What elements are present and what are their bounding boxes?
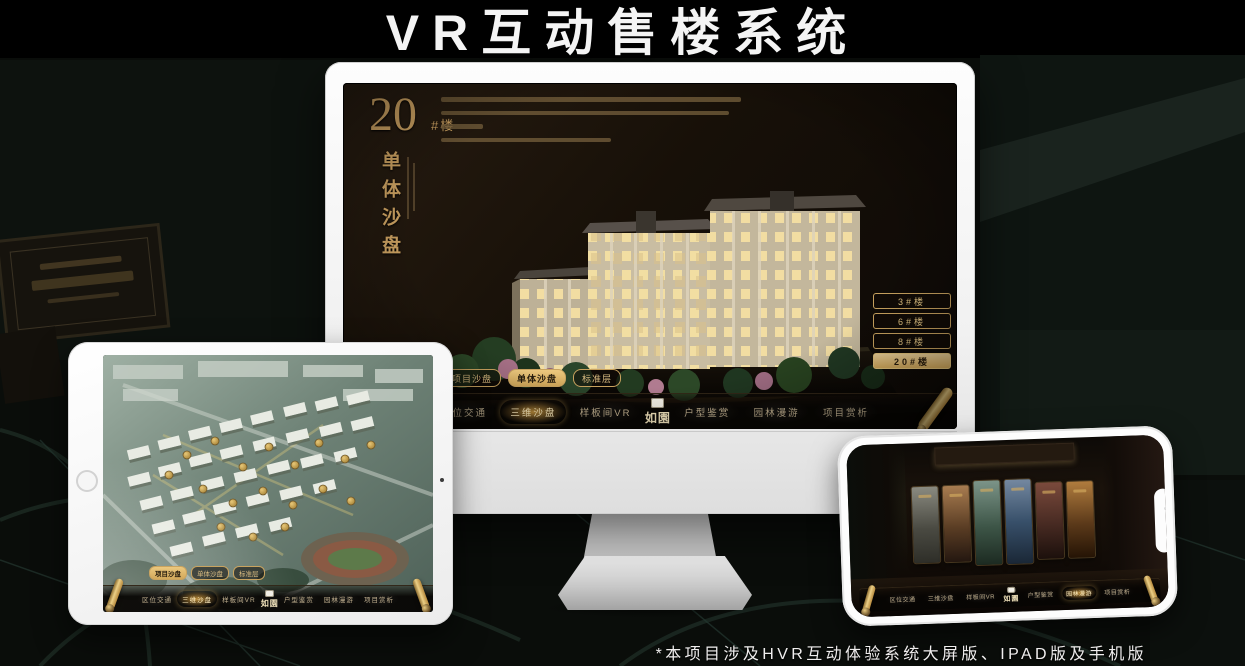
brand-logo: 如園 [1003,587,1020,605]
nav-item[interactable]: 园林漫游 [1062,586,1096,600]
sub-tab[interactable]: 单体沙盘 [191,566,229,580]
seal-icon [265,590,274,597]
nav-item[interactable]: 项目赏析 [1100,585,1134,599]
floor-button[interactable]: 8#楼 [873,333,951,349]
nav-item[interactable]: 三维沙盘 [500,400,566,424]
building-number-headline: 20 [369,91,417,139]
scene-panel[interactable] [943,485,972,562]
brand-logo: 如園 [645,398,671,426]
tablet-camera-dot [440,478,444,482]
brand-logo: 如園 [261,590,279,609]
scene-panel[interactable] [912,486,941,563]
tablet-navbar: 区位交通三维沙盘样板间VR 如園 户型鉴赏园林漫游项目赏析 [103,585,433,612]
page-title: VR互动售楼系统 [0,0,1245,58]
nav-item[interactable]: 园林漫游 [319,591,359,607]
nav-item[interactable]: 样板间VR [570,400,642,424]
award-plaque [0,225,169,343]
tablet-screen: 项目沙盘单体沙盘标准层 区位交通三维沙盘样板间VR 如園 户型鉴赏园林漫游项目赏… [103,355,433,612]
monitor-stand-neck [583,512,717,562]
nav-item[interactable]: 园林漫游 [744,400,810,424]
stage: VR互动售楼系统 20 #楼 单体沙盘 [0,0,1245,666]
nav-item[interactable]: 户型鉴赏 [674,400,740,424]
nav-item[interactable]: 样板间VR [962,589,999,603]
nav-item[interactable]: 户型鉴赏 [279,591,319,607]
phone-notch [1154,488,1169,553]
scene-panel[interactable] [1036,482,1065,559]
seal-icon [1007,587,1015,593]
scroll-toggle-icon[interactable] [1143,575,1159,604]
footnote-caption: *本项目涉及HVR互动体验系统大屏版、IPAD版及手机版 [656,640,1147,664]
monitor-stand-base [558,556,752,610]
sub-tab[interactable]: 标准层 [573,369,621,387]
phone-camera-icon [1164,506,1168,510]
tablet-device: 项目沙盘单体沙盘标准层 区位交通三维沙盘样板间VR 如園 户型鉴赏园林漫游项目赏… [68,342,453,625]
sub-tab[interactable]: 标准层 [233,566,265,580]
nav-item[interactable]: 户型鉴赏 [1023,587,1057,601]
nav-item[interactable]: 项目赏析 [359,591,399,607]
nav-item[interactable]: 区位交通 [137,591,177,607]
tablet-home-button [76,470,98,492]
scroll-toggle-icon[interactable] [916,386,954,429]
phone-device: 区位交通三维沙盘样板间VR 如園 户型鉴赏园林漫游项目赏析 [837,425,1178,627]
scene-panel[interactable] [973,480,1002,565]
sub-tab[interactable]: 项目沙盘 [149,566,187,580]
nav-item[interactable]: 三维沙盘 [177,591,217,607]
floor-button-group: 3#楼6#楼8#楼20#楼 [873,293,951,369]
floor-button[interactable]: 6#楼 [873,313,951,329]
floor-button[interactable]: 20#楼 [873,353,951,369]
scene-panel[interactable] [1004,479,1033,564]
seal-icon [651,398,664,408]
scene-panel[interactable] [1066,481,1095,558]
floor-button[interactable]: 3#楼 [873,293,951,309]
interior-ceiling-light [934,443,1075,466]
phone-screen: 区位交通三维沙盘样板间VR 如園 户型鉴赏园林漫游项目赏析 [846,435,1169,618]
nav-item[interactable]: 三维沙盘 [924,591,958,605]
nav-item[interactable]: 区位交通 [885,592,919,606]
tablet-subtabs: 项目沙盘单体沙盘标准层 [149,566,265,580]
nav-item[interactable]: 样板间VR [217,591,261,607]
nav-item[interactable]: 项目赏析 [813,400,879,424]
scene-gallery [912,481,1096,567]
scroll-toggle-icon[interactable] [862,584,876,613]
desktop-subtabs: 项目沙盘单体沙盘标准层 [443,369,621,387]
sub-tab[interactable]: 单体沙盘 [508,369,566,387]
